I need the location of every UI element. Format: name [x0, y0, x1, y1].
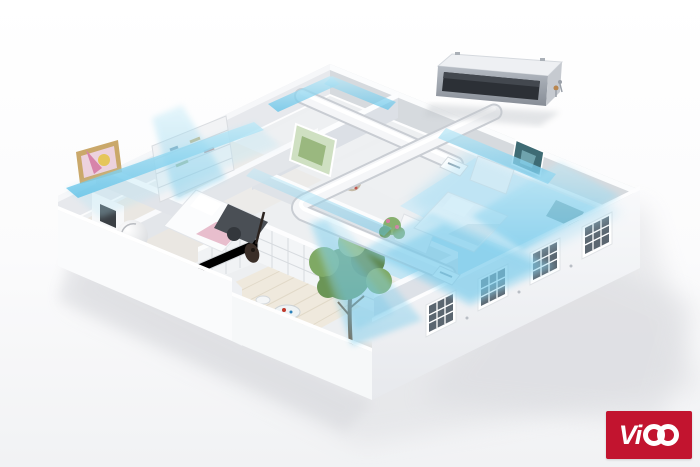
- ducted-ac-promo-image: Isometric 3D cutaway of an apartment sho…: [0, 0, 700, 467]
- vico-ring-icon: [657, 424, 679, 446]
- wall-vent-dot: [570, 265, 573, 268]
- refrigerant-pipe: [554, 86, 559, 91]
- refrigerant-pipe: [558, 80, 562, 84]
- logo-text: Vi: [619, 422, 642, 449]
- wall-vent-dot: [518, 291, 521, 294]
- table-item: [282, 308, 286, 312]
- ac-bracket: [540, 58, 545, 61]
- painting-detail: [98, 154, 110, 166]
- ac-indoor-unit: [424, 52, 562, 126]
- vico-logo: Vi: [606, 411, 692, 459]
- wall-vent-dot: [466, 317, 469, 320]
- desk-chair: [227, 227, 241, 241]
- apartment-3d-render: Isometric 3D cutaway of an apartment sho…: [0, 0, 700, 467]
- ac-bracket: [455, 52, 460, 55]
- table-item: [290, 311, 293, 314]
